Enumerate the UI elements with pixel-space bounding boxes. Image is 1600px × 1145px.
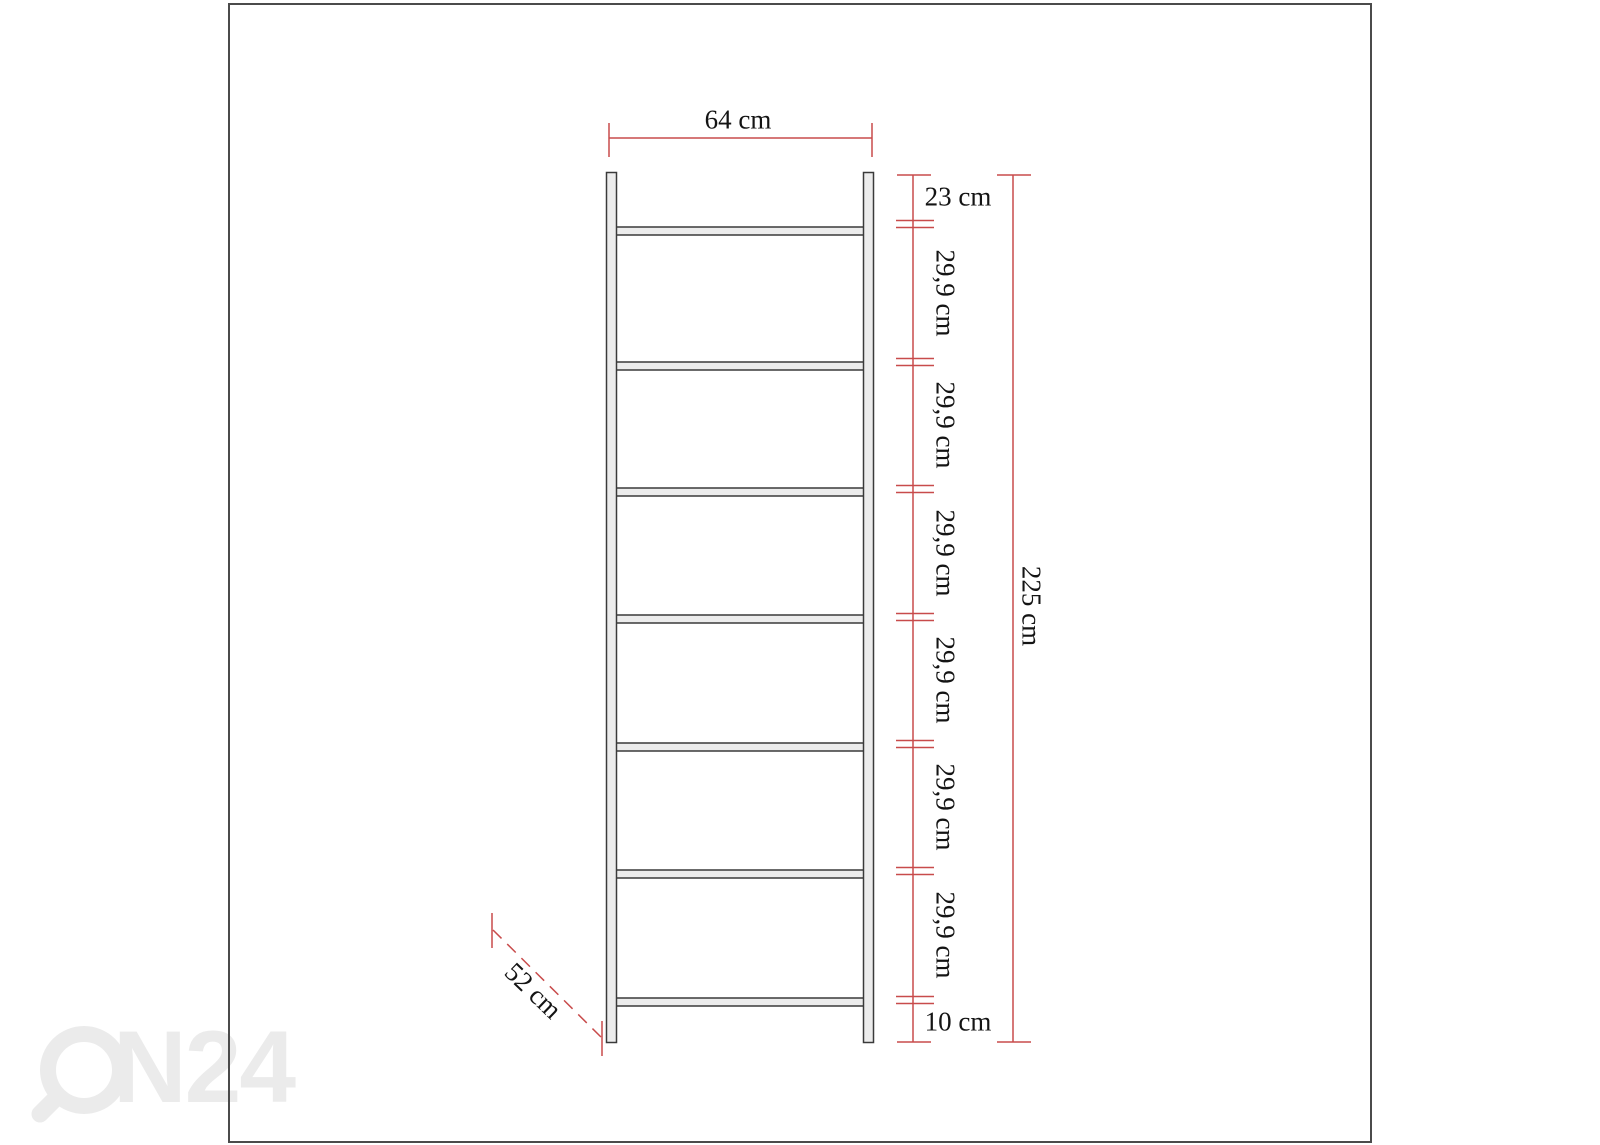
total-height-dimension-label: 225 cm xyxy=(1016,566,1047,646)
bottom-gap-dimension-label: 10 cm xyxy=(925,1007,992,1038)
segment-dimension-label: 29,9 cm xyxy=(930,250,961,337)
side-rails xyxy=(607,173,874,1043)
segment-dimension-label: 29,9 cm xyxy=(930,892,961,979)
left-rail xyxy=(607,173,617,1043)
right-rail xyxy=(864,173,874,1043)
shelf-panel xyxy=(614,743,865,751)
shelf-panel xyxy=(614,488,865,496)
shelf-panel xyxy=(614,227,865,235)
width-dimension-label: 64 cm xyxy=(705,105,772,136)
drawing-canvas: N24 xyxy=(0,0,1600,1145)
shelf-panel xyxy=(614,870,865,878)
segment-dimension-label: 29,9 cm xyxy=(930,382,961,469)
shelf-panel xyxy=(614,362,865,370)
shelf-panel xyxy=(614,998,865,1006)
shelf-panels xyxy=(614,227,865,1006)
line-art-layer xyxy=(0,0,1600,1145)
segment-dimension-label: 29,9 cm xyxy=(930,637,961,724)
shelf-panel xyxy=(614,615,865,623)
segment-dimension-line xyxy=(896,175,934,1042)
top-gap-dimension-label: 23 cm xyxy=(925,182,992,213)
segment-dimension-label: 29,9 cm xyxy=(930,510,961,597)
segment-dimension-label: 29,9 cm xyxy=(930,764,961,851)
